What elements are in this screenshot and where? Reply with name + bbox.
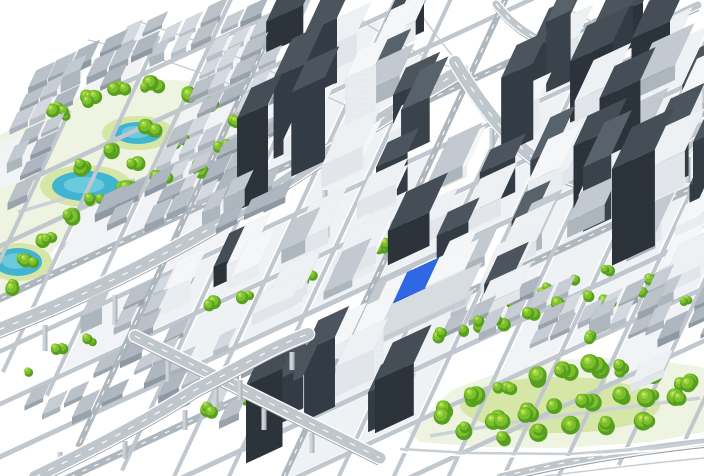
city-map xyxy=(0,0,704,476)
city-3d-map-scene xyxy=(0,0,704,476)
tree-cluster xyxy=(51,343,68,355)
tree-cluster xyxy=(561,416,580,435)
tree-cluster xyxy=(529,424,547,442)
tree-cluster xyxy=(546,398,562,414)
